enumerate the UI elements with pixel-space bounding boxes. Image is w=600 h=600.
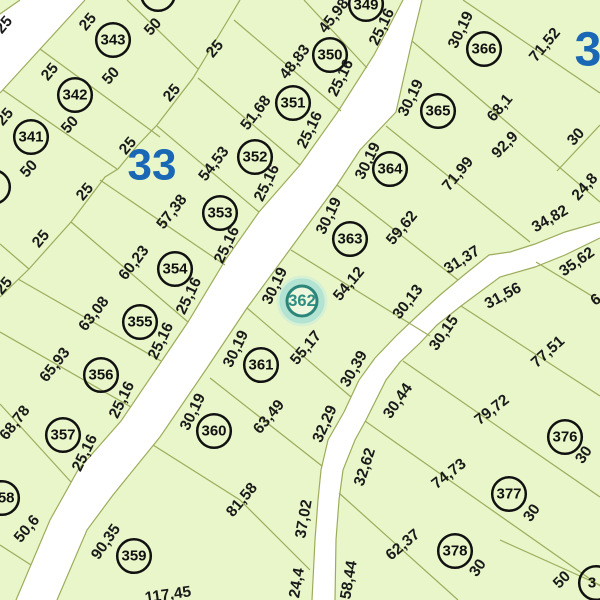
svg-text:366: 366: [471, 41, 496, 58]
svg-text:364: 364: [377, 161, 403, 178]
svg-text:343: 343: [100, 32, 125, 49]
svg-text:3: 3: [588, 575, 596, 592]
svg-text:365: 365: [425, 103, 450, 120]
svg-text:354: 354: [162, 261, 188, 278]
svg-text:33: 33: [128, 141, 177, 190]
svg-text:358: 358: [0, 490, 15, 507]
svg-text:377: 377: [496, 486, 521, 503]
svg-text:341: 341: [18, 129, 43, 146]
svg-text:363: 363: [337, 231, 362, 248]
svg-text:342: 342: [62, 87, 87, 104]
svg-text:356: 356: [88, 367, 113, 384]
svg-text:361: 361: [248, 357, 273, 374]
svg-text:349: 349: [353, 0, 378, 14]
svg-text:378: 378: [442, 543, 467, 560]
svg-text:353: 353: [207, 205, 232, 222]
svg-text:350: 350: [317, 47, 342, 64]
svg-text:359: 359: [121, 548, 146, 565]
svg-text:351: 351: [280, 95, 305, 112]
svg-text:362: 362: [288, 292, 316, 310]
svg-text:357: 357: [50, 427, 75, 444]
svg-text:3: 3: [575, 24, 600, 77]
svg-text:352: 352: [242, 149, 267, 166]
svg-text:355: 355: [127, 314, 152, 331]
svg-text:360: 360: [201, 423, 226, 440]
svg-text:376: 376: [552, 429, 577, 446]
